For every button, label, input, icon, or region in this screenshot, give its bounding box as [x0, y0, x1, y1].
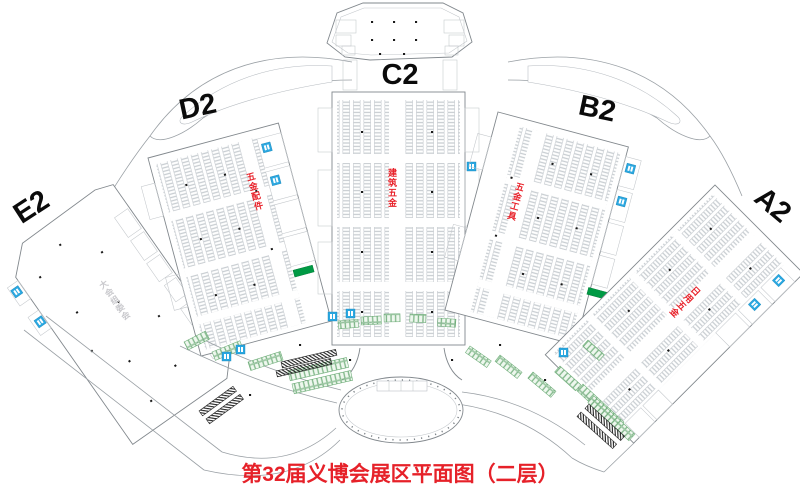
hall-c2-category: 建筑五金	[387, 167, 398, 208]
toilet-icon	[467, 162, 476, 171]
toilet-icon	[625, 163, 636, 174]
hall-d2-label: D2	[176, 88, 219, 127]
toilet-icon	[236, 345, 245, 354]
toilet-icon	[10, 286, 23, 299]
hall-e2-label: E2	[8, 184, 55, 230]
hall-a2-label: A2	[748, 181, 797, 229]
floor-plan-page: 大会组委会 五金配件	[0, 0, 800, 491]
plan-caption: 第32届义博会展区平面图（二层）	[241, 462, 558, 486]
toilet-icon	[346, 309, 355, 318]
toilet-icon	[559, 348, 568, 357]
exhibition-floor-plan: 大会组委会 五金配件	[0, 0, 800, 491]
toilet-icon	[222, 352, 231, 361]
toilet-icon	[616, 196, 627, 207]
hall-c2-label: C2	[381, 59, 418, 91]
stage-block	[377, 381, 427, 391]
toilet-icon	[328, 312, 337, 321]
central-oval-atrium	[339, 377, 463, 443]
hall-b2-label: B2	[576, 90, 619, 129]
